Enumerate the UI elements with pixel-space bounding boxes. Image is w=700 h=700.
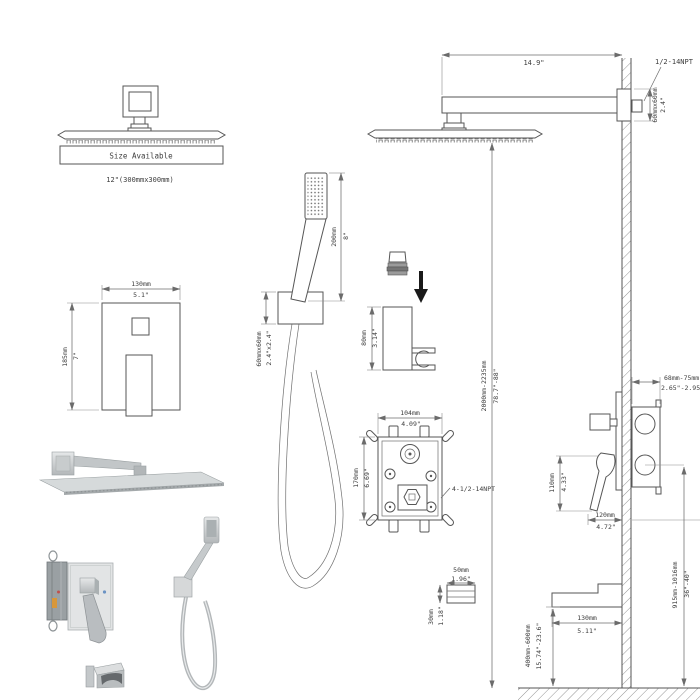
wand-length-in: 8" <box>342 232 350 240</box>
rough-in-valve-drawing: 104mm 4.09" 170mm 6.69" 4-1/2-14NPT <box>352 409 495 532</box>
holder-height-in: 3.14" <box>371 328 379 348</box>
spout-length-in: 5.11" <box>577 627 597 635</box>
section-width-mm: 50mm <box>453 566 469 574</box>
render-trim-and-handle <box>68 563 113 643</box>
cold-indicator-dot <box>103 590 106 593</box>
trim-plate-side <box>616 392 622 490</box>
valve-width-mm: 104mm <box>400 409 420 417</box>
handle-projection-in: 4.72" <box>596 523 616 531</box>
spout-cross-section: 50mm 1.96" 30mm 1.18" <box>427 566 475 626</box>
render-label-sticker <box>52 598 57 608</box>
valve-depth-in: 2.65"-2.95" <box>661 384 700 392</box>
render-rough-in-valve <box>47 551 67 631</box>
bracket-size-in: 2.4"x2.4" <box>265 330 273 365</box>
valve-hex-nut <box>404 490 420 505</box>
valve-mount-height-mm: 915mm-1016mm <box>671 561 679 608</box>
valve-trim-front-view: 130mm 5.1" 185mm 7" <box>61 280 180 416</box>
hand-shower-drawing: 200mm 8" 60mmx60mm 2.4"x2.4" <box>255 173 350 588</box>
npt-nipple <box>632 100 642 112</box>
diagram-svg: Size Available 12"(300mmx300mm) 14.9" 1/… <box>0 0 700 700</box>
valve-height-in: 6.69" <box>363 468 371 488</box>
height-in-label: 78.7"-88" <box>492 368 500 403</box>
trim-height-in: 7" <box>72 352 80 360</box>
arm-length-label: 14.9" <box>523 59 544 67</box>
valve-depth-mm: 68mm-75mm <box>664 374 699 382</box>
flange-size-mm: 60mmx60mm <box>651 87 659 122</box>
size-available-label: Size Available <box>109 152 173 161</box>
diverter-knob-side <box>590 414 610 430</box>
wand-length-mm: 200mm <box>330 227 338 247</box>
handle-length-in: 4.33" <box>560 472 568 492</box>
hose-inner <box>286 324 336 578</box>
flange-size-in: 2.4" <box>659 97 667 113</box>
handle-length-mm: 110mm <box>548 473 556 493</box>
wall-hatch <box>622 58 631 688</box>
valve-thread-label: 4-1/2-14NPT <box>452 485 495 493</box>
hose-outer <box>278 324 343 588</box>
wall-arm-showerhead-drawing: 14.9" 1/2-14NPT 60mmx60mm 2.4" <box>368 55 694 143</box>
shower-arm <box>442 97 620 113</box>
section-height-in: 1.18" <box>437 606 445 626</box>
floor-hatch <box>518 688 700 700</box>
wand-handle <box>291 219 326 302</box>
down-arrow-icon <box>414 271 428 303</box>
nozzle-row <box>66 139 216 144</box>
spout-height-mm: 400mm-600mm <box>524 624 532 667</box>
overall-height-dimension: 2000mm-2235mm 78.7"-88" <box>480 143 500 688</box>
hose-connector <box>389 252 406 262</box>
arm-thread-label: 1/2-14NPT <box>655 58 694 66</box>
shower-system-dimension-diagram: Size Available 12"(300mmx300mm) 14.9" 1/… <box>0 0 700 700</box>
section-width-in: 1.96" <box>451 575 471 583</box>
section-height-mm: 30mm <box>427 609 435 625</box>
render-hand-shower <box>174 517 219 688</box>
bracket-size-mm: 60mmx60mm <box>255 331 263 366</box>
overhead-showerhead-drawing: Size Available 12"(300mmx300mm) <box>58 86 225 184</box>
product-render <box>40 452 224 688</box>
height-mm-label: 2000mm-2235mm <box>480 360 488 411</box>
holder-body <box>383 307 412 370</box>
hot-indicator-dot <box>57 591 60 594</box>
spout-length-mm: 130mm <box>577 614 597 622</box>
handle-projection-mm: 120mm <box>595 511 615 519</box>
trim-width-in: 5.1" <box>133 291 149 299</box>
trim-height-mm: 185mm <box>61 347 69 367</box>
wall-flange <box>617 89 631 121</box>
trim-width-mm: 130mm <box>131 280 151 288</box>
valve-mount-height-in: 36"-40" <box>683 570 691 597</box>
size-option-label: 12"(300mmx300mm) <box>106 176 173 184</box>
render-showerhead-arm <box>40 452 224 495</box>
handle-side <box>590 453 615 511</box>
holder-drawing: 80mm 3.14" <box>360 252 435 370</box>
tub-spout-side-view: 130mm 5.11" 400mm-600mm 15.74"-23.6" <box>524 584 622 686</box>
valve-width-in: 4.09" <box>401 420 421 428</box>
render-tub-spout <box>86 663 124 688</box>
valve-height-mm: 170mm <box>352 468 360 488</box>
tub-spout-profile <box>552 584 622 607</box>
diverter-button <box>132 318 149 335</box>
spout-height-in: 15.74"-23.6" <box>535 623 543 670</box>
holder-height-mm: 80mm <box>360 330 368 346</box>
lever-handle <box>126 355 152 416</box>
spray-face <box>308 176 325 216</box>
nozzle-row <box>376 138 533 143</box>
render-diverter-knob <box>80 578 95 593</box>
